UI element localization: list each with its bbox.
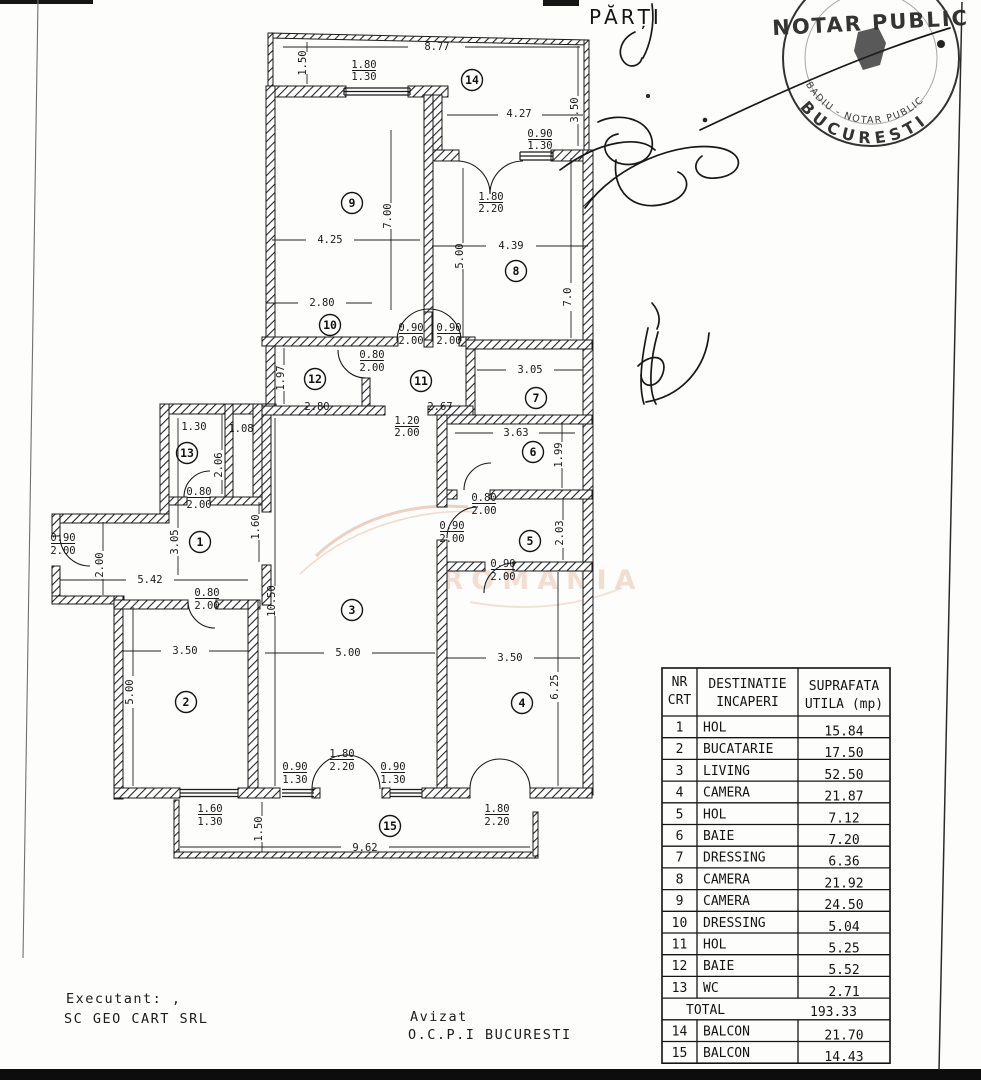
dimension-label: 2.20 [478, 203, 503, 215]
dimension-label: 0.90 [439, 520, 464, 532]
dimension-label: 2.20 [484, 816, 509, 828]
dimension-label: 2.00 [490, 571, 515, 583]
room-number: 14 [465, 73, 479, 87]
table-row-area: 52.50 [824, 768, 863, 783]
table-row-area: 24.50 [824, 898, 863, 913]
avizat-name: O.C.P.I BUCURESTI [408, 1027, 572, 1043]
room-number: 3 [349, 603, 356, 617]
dimension-label: 1.30 [380, 774, 405, 786]
stamp-crest-icon [854, 27, 886, 70]
dimension-label: 1.30 [527, 140, 552, 152]
dimension-label: 0.80 [359, 349, 384, 361]
dimension-label: 1.50 [297, 50, 309, 75]
room-number: 4 [519, 696, 526, 710]
table-row-name: CAMERA [703, 894, 750, 909]
dimension-label: 1.80 [351, 59, 376, 71]
scan-left-edge-line [23, 0, 38, 958]
scan-top-mark-mid [543, 0, 579, 6]
dimension-label: 0.90 [398, 322, 423, 334]
dimension-label: 4.39 [498, 240, 523, 252]
dimension-label: 2.00 [398, 335, 423, 347]
table-row-area: 5.25 [828, 942, 859, 957]
dimension-label: 1.60 [250, 514, 262, 539]
table-row-name: WC [703, 981, 719, 996]
dimension-label: 0.90 [50, 532, 75, 544]
table-row-name: CAMERA [703, 872, 750, 887]
dimension-label: 3.50 [569, 97, 581, 122]
dimension-label: 1.30 [197, 816, 222, 828]
dimension-label: 2.03 [554, 520, 566, 545]
dimension-label: 2.00 [436, 335, 461, 347]
dimension-label: 3.05 [169, 529, 181, 554]
notary-stamp: NOTAR PUBLIC BADIU - NOTAR PUBLIC BUCURE… [772, 0, 970, 148]
scan-bottom-bar [0, 1069, 981, 1080]
table-row-number: 11 [672, 938, 688, 953]
dimension-label: 2.80 [304, 401, 329, 413]
table-total-label: TOTAL [686, 1003, 725, 1018]
table-row-area: 21.70 [824, 1028, 863, 1043]
table-row-number: 3 [676, 764, 684, 779]
dimension-label: 0.80 [194, 587, 219, 599]
dimension-lines-vertical [103, 42, 578, 852]
table-row-name: DRESSING [703, 851, 766, 866]
table-row-name: BAIE [703, 959, 734, 974]
table-row-area: 21.87 [824, 790, 863, 805]
table-row-name: HOL [703, 938, 727, 953]
dimension-label: 2.00 [186, 499, 211, 511]
room-number: 1 [197, 535, 204, 549]
table-row-number: 5 [676, 807, 684, 822]
dimension-label: 9.62 [352, 842, 377, 854]
dimension-label: 2.06 [213, 452, 225, 477]
dimension-label: 2.00 [471, 505, 496, 517]
table-row-number: 14 [672, 1024, 688, 1039]
table-row-name: HOL [703, 721, 727, 736]
table-row-number: 9 [676, 894, 684, 909]
dimension-label: 2.00 [50, 545, 75, 557]
dimension-label: 2.20 [329, 761, 354, 773]
dimension-label: 1.60 [197, 803, 222, 815]
table-row-number: 10 [672, 916, 688, 931]
table-row-number: 6 [676, 829, 684, 844]
table-row-name: HOL [703, 807, 727, 822]
room-number: 9 [349, 196, 356, 210]
table-header: DESTINATIE [708, 677, 786, 692]
dimension-label: 5.00 [124, 679, 136, 704]
table-row-area: 14.43 [824, 1050, 863, 1065]
table-row-number: 2 [676, 742, 684, 757]
dimension-label: 0.90 [527, 128, 552, 140]
table-row-area: 17.50 [824, 746, 863, 761]
room-number: 6 [530, 445, 537, 459]
table-header: NR [672, 675, 688, 690]
table-header: UTILA (mp) [805, 697, 883, 712]
table-row-number: 8 [676, 872, 684, 887]
dimension-label: 1.99 [553, 442, 565, 467]
dimension-label: 1.30 [282, 774, 307, 786]
dimension-label: 7.0 [562, 288, 574, 307]
room-number: 12 [308, 372, 322, 386]
table-total-value: 193.33 [810, 1005, 857, 1020]
dimension-label: 1.30 [351, 71, 376, 83]
table-row-number: 4 [676, 786, 684, 801]
executant-name: SC GEO CART SRL [64, 1011, 208, 1027]
table-row-name: BALCON [703, 1024, 750, 1039]
table-row-number: 13 [672, 981, 688, 996]
dimension-label: 10.50 [266, 585, 278, 617]
table-row-area: 6.36 [828, 855, 859, 870]
table-row-name: BUCATARIE [703, 742, 773, 757]
dimension-label: 2.67 [427, 401, 452, 413]
parti-heading: PĂRȚI [589, 5, 662, 29]
dimension-label: 1.08 [228, 423, 253, 435]
floor-plan-canvas: ROMANIA [0, 0, 981, 1080]
dimension-label: 7.00 [382, 203, 394, 228]
dimension-label: 2.00 [439, 533, 464, 545]
dimension-label: 1.80 [478, 191, 503, 203]
dimension-label: 0.90 [282, 761, 307, 773]
table-row-area: 2.71 [828, 985, 859, 1000]
room-areas-table: NRCRTDESTINATIEINCAPERISUPRAFATAUTILA (m… [662, 668, 890, 1065]
stamp-dot [937, 40, 945, 48]
dimension-label: 4.25 [317, 234, 342, 246]
table-row-area: 5.52 [828, 963, 859, 978]
table-row-name: LIVING [703, 764, 750, 779]
room-number: 7 [533, 391, 540, 405]
dimension-label: 8.77 [424, 41, 449, 53]
dimension-label: 5.00 [454, 243, 466, 268]
dimension-label: 6.25 [549, 674, 561, 699]
avizat-label: Avizat [410, 1009, 468, 1025]
dimension-labels: 8.771.501.801.304.273.500.901.301.802.20… [50, 41, 581, 854]
dimension-label: 1.20 [394, 415, 419, 427]
dimension-label: 0.80 [186, 486, 211, 498]
dimension-label: 1.80 [329, 748, 354, 760]
dimension-label: 3.05 [517, 364, 542, 376]
dimension-label: 0.80 [471, 492, 496, 504]
table-row-name: CAMERA [703, 786, 750, 801]
room-number: 2 [183, 695, 190, 709]
dimension-label: 2.00 [394, 427, 419, 439]
dimension-label: 5.00 [335, 647, 360, 659]
dimension-label: 3.63 [503, 427, 528, 439]
table-row-name: BAIE [703, 829, 734, 844]
dimension-label: 2.00 [359, 362, 384, 374]
dimension-label: 0.90 [380, 761, 405, 773]
scan-right-edge-line [939, 2, 962, 1070]
dimension-label: 1.80 [484, 803, 509, 815]
dimension-label: 2.00 [194, 600, 219, 612]
table-row-area: 15.84 [824, 725, 863, 740]
table-header: CRT [668, 693, 692, 708]
dimension-label: 1.97 [275, 365, 287, 390]
table-row-name: DRESSING [703, 916, 766, 931]
scanned-floor-plan-page: ROMANIA [0, 0, 981, 1080]
room-number: 5 [527, 534, 534, 548]
table-row-area: 5.04 [828, 920, 859, 935]
table-header: INCAPERI [716, 695, 779, 710]
dimension-label: 4.27 [506, 108, 531, 120]
room-number: 8 [513, 264, 520, 278]
dimension-label: 0.90 [436, 322, 461, 334]
table-row-number: 15 [672, 1046, 688, 1061]
dimension-label: 5.42 [137, 574, 162, 586]
table-row-area: 7.20 [828, 833, 859, 848]
handwritten-signatures [560, 4, 950, 404]
executant-label: Executant: , [66, 991, 182, 1007]
dimension-label: 1.50 [253, 816, 265, 841]
room-number: 13 [180, 446, 194, 460]
table-row-name: BALCON [703, 1046, 750, 1061]
table-row-number: 1 [676, 721, 684, 736]
table-row-area: 7.12 [828, 811, 859, 826]
room-number: 15 [383, 819, 397, 833]
dimension-label: 2.00 [94, 552, 106, 577]
dimension-lines-horizontal [60, 47, 588, 847]
table-row-number: 7 [676, 851, 684, 866]
table-header: SUPRAFATA [809, 679, 880, 694]
room-number: 11 [414, 374, 428, 388]
dimension-label: 3.50 [172, 645, 197, 657]
dimension-label: 0.90 [490, 558, 515, 570]
dimension-label: 3.50 [497, 652, 522, 664]
table-row-number: 12 [672, 959, 688, 974]
scan-top-mark-left [0, 0, 93, 4]
dimension-label: 1.30 [181, 421, 206, 433]
room-number: 10 [323, 318, 337, 332]
table-row-area: 21.92 [824, 876, 863, 891]
dimension-label: 2.80 [309, 297, 334, 309]
